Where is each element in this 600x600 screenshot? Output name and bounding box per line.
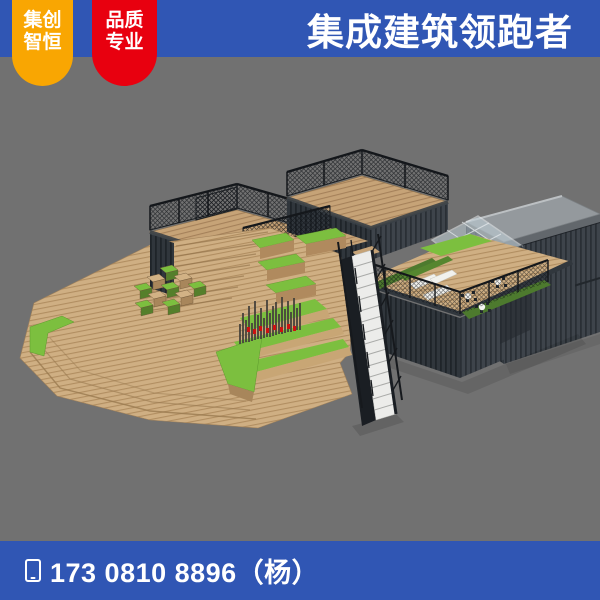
- badge-line: 品质: [92, 10, 157, 32]
- badge-pinzhi-zhuanye: 品质 专业: [92, 0, 157, 86]
- badge-line: 集创: [12, 10, 73, 32]
- phone-icon: [25, 559, 41, 582]
- header-bar: 集成建筑领跑者: [0, 0, 600, 57]
- poster: 集成建筑领跑者 集创 智恒 品质 专业 173 0810 8896（杨）: [0, 0, 600, 600]
- badge-line: 专业: [92, 32, 157, 54]
- footer-bar: 173 0810 8896（杨）: [0, 541, 600, 600]
- badge-jichuang-zhiheng: 集创 智恒: [12, 0, 73, 86]
- page-title: 集成建筑领跑者: [284, 0, 596, 57]
- badge-line: 智恒: [12, 32, 73, 54]
- phone-number: 173 0810 8896（杨）: [50, 551, 319, 590]
- amphitheater-plaza: [20, 228, 352, 428]
- render-3d-scene: [0, 0, 600, 600]
